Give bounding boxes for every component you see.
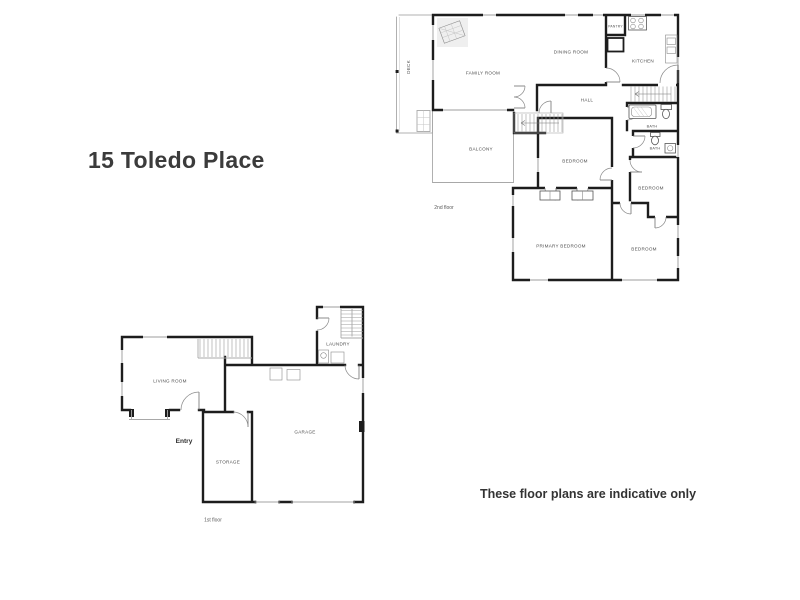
toilet-icon: [661, 105, 672, 119]
garage-door: [255, 501, 356, 504]
room-label-laundry: LAUNDRY: [326, 342, 350, 347]
room-label-balcony: BALCONY: [469, 147, 493, 152]
stairs-laundry: [341, 309, 363, 338]
property-title: 15 Toledo Place: [88, 147, 265, 174]
garage-equipment: [270, 368, 300, 380]
room-label-bedroom-right: BEDROOM: [638, 186, 664, 191]
room-labels: DECK FAMILY ROOM DINING ROOM PANTRY KITC…: [406, 25, 664, 252]
garage-side-door: [359, 421, 365, 432]
second-floor-caption: 2nd floor: [434, 205, 454, 211]
bay-window: [129, 409, 170, 420]
room-label-kitchen: KITCHEN: [632, 59, 654, 64]
room-label-hall: HALL: [581, 98, 594, 103]
disclaimer-text: These floor plans are indicative only: [480, 487, 696, 501]
room-label-garage: GARAGE: [294, 430, 315, 435]
fixtures: [540, 17, 677, 201]
entry-label: Entry: [176, 438, 193, 445]
primary-closets: [540, 191, 593, 200]
room-label-living-room: LIVING ROOM: [153, 379, 186, 384]
deck-outline: [396, 14, 433, 133]
room-label-bath-main: BATH: [647, 125, 658, 129]
toilet-icon-2: [651, 133, 661, 145]
sink-icon: [665, 144, 676, 154]
floorplan-page: 15 Toledo Place: [0, 0, 800, 600]
first-floor-plan: LIVING ROOM LAUNDRY STORAGE GARAGE Entry…: [115, 300, 375, 530]
kitchen-counter: [666, 35, 678, 63]
first-floor-caption: 1st floor: [204, 518, 222, 524]
room-label-dining-room: DINING ROOM: [554, 50, 588, 55]
room-label-storage: STORAGE: [216, 460, 240, 465]
couch-icon: [437, 18, 468, 47]
second-floor-plan: DECK FAMILY ROOM DINING ROOM PANTRY KITC…: [393, 10, 685, 295]
deck-steps: [417, 111, 430, 132]
room-label-bedroom-middle: BEDROOM: [562, 159, 588, 164]
stove-icon: [629, 17, 647, 31]
room-label-bedroom-bottom: BEDROOM: [631, 247, 657, 252]
bathtub-icon: [629, 105, 656, 119]
stairs-living: [198, 339, 252, 358]
room-label-family-room: FAMILY ROOM: [466, 71, 500, 76]
room-label-primary-bedroom: PRIMARY BEDROOM: [536, 244, 586, 249]
stairs-upper-right: [631, 87, 675, 102]
room-label-pantry: PANTRY: [608, 25, 623, 29]
room-label-deck: DECK: [406, 59, 411, 73]
room-label-bath-ensuite: BATH: [650, 147, 661, 151]
pantry-closet: [608, 38, 624, 52]
washer-icon: [319, 350, 345, 363]
